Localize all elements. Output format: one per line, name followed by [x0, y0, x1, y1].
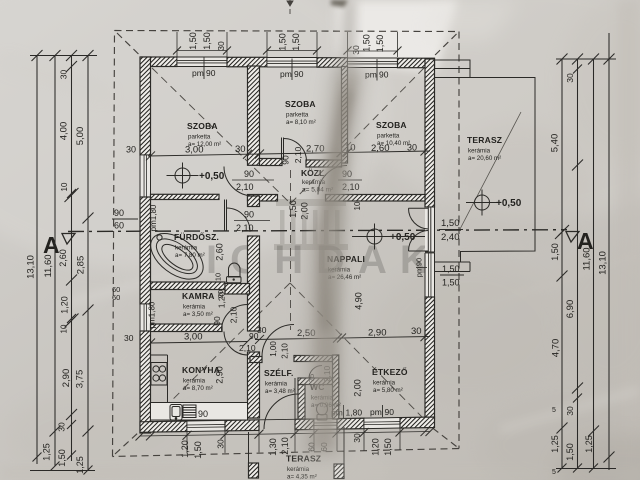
svg-text:30: 30	[411, 326, 422, 337]
svg-text:parketta: parketta	[377, 133, 400, 140]
svg-text:30: 30	[407, 143, 417, 153]
svg-text:10: 10	[60, 182, 69, 191]
svg-text:30: 30	[126, 145, 136, 155]
svg-text:3,75: 3,75	[75, 370, 86, 389]
svg-text:pm1,80: pm1,80	[149, 204, 158, 231]
svg-text:+0,50: +0,50	[496, 198, 522, 209]
svg-text:30: 30	[59, 70, 69, 80]
svg-text:2,10: 2,10	[293, 146, 303, 163]
svg-text:1,20: 1,20	[217, 291, 227, 308]
svg-text:11,60: 11,60	[43, 254, 54, 277]
svg-text:1,30: 1,30	[268, 438, 278, 456]
svg-text:30: 30	[216, 41, 226, 51]
svg-text:+0,50: +0,50	[199, 171, 225, 182]
svg-text:90: 90	[415, 258, 424, 266]
svg-text:1,50: 1,50	[383, 438, 393, 456]
svg-text:90: 90	[281, 155, 291, 165]
svg-text:parketta: parketta	[286, 112, 309, 119]
svg-text:2,10: 2,10	[239, 343, 256, 353]
svg-text:1,20: 1,20	[60, 296, 70, 314]
svg-text:2,10: 2,10	[236, 182, 254, 192]
svg-text:2,40: 2,40	[441, 232, 460, 243]
svg-text:30: 30	[57, 422, 67, 432]
svg-text:5: 5	[552, 407, 556, 414]
svg-text:30: 30	[235, 144, 246, 155]
svg-text:KAMRA: KAMRA	[182, 291, 215, 301]
svg-text:30: 30	[216, 439, 226, 449]
svg-text:3,00: 3,00	[185, 145, 204, 156]
svg-text:13,10: 13,10	[26, 255, 37, 279]
svg-text:1,20: 1,20	[371, 438, 381, 456]
svg-text:10: 10	[214, 273, 223, 281]
svg-text:2,10: 2,10	[280, 437, 290, 455]
svg-text:90: 90	[244, 210, 254, 220]
svg-text:10: 10	[60, 324, 69, 333]
svg-text:a= 20,60 m²: a= 20,60 m²	[468, 155, 501, 162]
svg-text:2,90: 2,90	[368, 328, 387, 339]
svg-text:90: 90	[294, 69, 304, 79]
svg-text:kerámia: kerámia	[175, 245, 198, 252]
svg-text:pm: pm	[415, 267, 424, 277]
svg-text:2,10: 2,10	[281, 343, 290, 359]
svg-text:11,60: 11,60	[582, 247, 593, 270]
svg-text:kerámia: kerámia	[183, 304, 206, 311]
svg-text:2,10: 2,10	[236, 223, 254, 233]
svg-text:90: 90	[206, 68, 216, 78]
svg-text:30: 30	[565, 406, 575, 416]
svg-text:1,50: 1,50	[291, 33, 301, 51]
svg-text:kerámia: kerámia	[183, 378, 206, 385]
svg-text:2,00: 2,00	[353, 379, 363, 397]
svg-text:4,90: 4,90	[354, 292, 364, 310]
svg-text:1,25: 1,25	[550, 435, 560, 453]
svg-text:13,10: 13,10	[598, 251, 609, 275]
svg-text:5,40: 5,40	[550, 134, 561, 153]
svg-text:2,60: 2,60	[371, 143, 390, 154]
svg-text:TERASZ: TERASZ	[467, 135, 502, 145]
svg-text:3,00: 3,00	[184, 332, 203, 343]
svg-text:90: 90	[212, 316, 222, 326]
svg-text:kerámia: kerámia	[468, 148, 491, 155]
svg-text:90: 90	[198, 409, 208, 419]
svg-text:1,50: 1,50	[57, 449, 67, 467]
svg-text:pm: pm	[370, 407, 382, 417]
svg-text:1,50: 1,50	[362, 34, 372, 52]
svg-text:kerámia: kerámia	[373, 380, 396, 387]
svg-text:1,50: 1,50	[442, 278, 460, 288]
svg-text:60: 60	[112, 293, 120, 302]
svg-text:SZOBA: SZOBA	[187, 121, 218, 131]
svg-text:1,50: 1,50	[193, 441, 203, 459]
svg-text:pm: pm	[280, 69, 292, 79]
svg-text:FÜRDŐSZ.: FÜRDŐSZ.	[174, 231, 219, 242]
svg-text:1,25: 1,25	[584, 435, 594, 453]
svg-text:2,10: 2,10	[229, 306, 239, 323]
svg-text:90: 90	[379, 70, 389, 80]
svg-text:1,50: 1,50	[565, 443, 575, 461]
svg-text:a= 5,80 m²: a= 5,80 m²	[373, 387, 403, 394]
svg-text:SZÉLF.: SZÉLF.	[264, 368, 294, 378]
svg-text:2,60: 2,60	[58, 249, 68, 267]
svg-text:1,00: 1,00	[269, 341, 278, 357]
svg-text:2,90: 2,90	[215, 366, 225, 384]
svg-text:2,00: 2,00	[300, 202, 310, 220]
svg-text:+0,50: +0,50	[390, 232, 416, 243]
svg-text:5,00: 5,00	[75, 127, 86, 146]
svg-text:a= 7,80 m²: a= 7,80 m²	[175, 252, 205, 259]
svg-text:2,90: 2,90	[61, 369, 72, 388]
svg-text:30: 30	[124, 333, 134, 343]
svg-text:4,70: 4,70	[551, 339, 562, 358]
svg-text:1,50: 1,50	[202, 32, 212, 50]
svg-text:1,25: 1,25	[42, 443, 52, 461]
svg-text:a= 3,48 m²: a= 3,48 m²	[265, 388, 295, 395]
svg-text:SZOBA: SZOBA	[285, 99, 316, 109]
svg-text:1,50: 1,50	[288, 200, 298, 218]
svg-text:SZOBA: SZOBA	[376, 120, 407, 130]
svg-text:parketta: parketta	[188, 134, 211, 141]
svg-text:30: 30	[565, 73, 575, 83]
svg-text:ÉTKEZŐ: ÉTKEZŐ	[372, 366, 408, 377]
svg-text:a= 3,50 m²: a= 3,50 m²	[183, 311, 213, 318]
svg-text:1,50: 1,50	[442, 264, 460, 274]
svg-text:pm1,80: pm1,80	[148, 301, 157, 328]
svg-text:90: 90	[385, 407, 395, 417]
svg-text:1,50: 1,50	[375, 35, 385, 53]
svg-text:1,50: 1,50	[441, 218, 460, 229]
svg-text:1,50: 1,50	[188, 32, 198, 50]
svg-text:kerámia: kerámia	[265, 381, 288, 388]
svg-text:90: 90	[114, 208, 124, 218]
svg-text:10: 10	[353, 201, 362, 210]
svg-text:1,20: 1,20	[180, 440, 190, 458]
svg-text:60: 60	[114, 221, 124, 231]
svg-text:1,50: 1,50	[278, 33, 288, 51]
svg-text:5: 5	[552, 469, 556, 476]
svg-text:pm: pm	[192, 68, 204, 78]
svg-text:pm: pm	[365, 70, 377, 80]
svg-text:6,90: 6,90	[565, 300, 576, 319]
svg-text:1,50: 1,50	[550, 243, 560, 261]
svg-text:a= 8,70 m²: a= 8,70 m²	[183, 385, 213, 392]
svg-text:2,60: 2,60	[215, 243, 225, 261]
svg-text:1,25: 1,25	[75, 456, 85, 474]
svg-text:90: 90	[244, 169, 254, 179]
svg-text:2,85: 2,85	[76, 256, 87, 275]
svg-text:1,80: 1,80	[346, 408, 363, 418]
svg-text:a= 8,10 m²: a= 8,10 m²	[286, 119, 316, 126]
svg-text:30: 30	[352, 433, 362, 443]
svg-text:4,00: 4,00	[59, 122, 70, 141]
